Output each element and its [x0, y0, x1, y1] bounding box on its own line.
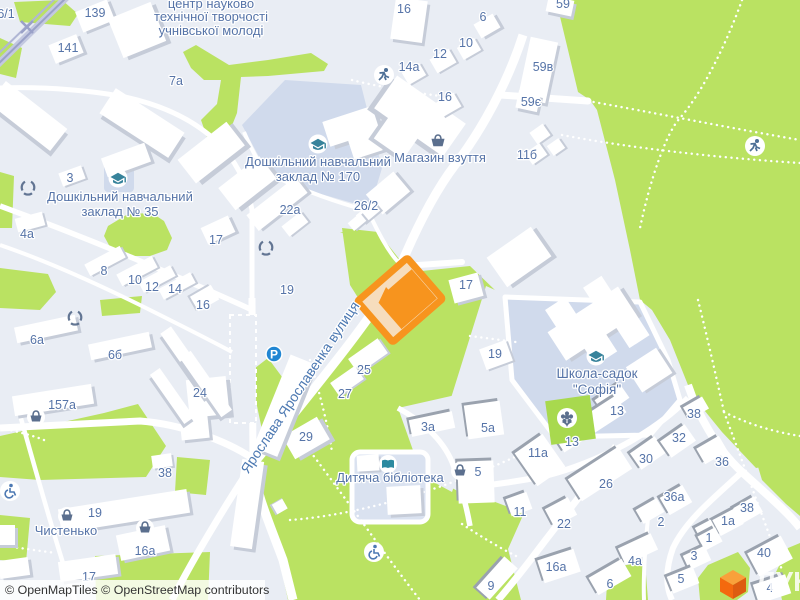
svg-text:30: 30 — [639, 452, 653, 466]
svg-text:157a: 157a — [48, 398, 76, 412]
svg-text:Чистенько: Чистенько — [35, 523, 97, 538]
svg-text:19: 19 — [280, 283, 294, 297]
svg-text:141: 141 — [58, 41, 79, 55]
svg-text:36: 36 — [715, 455, 729, 469]
svg-text:Дитяча бібліотека: Дитяча бібліотека — [336, 470, 444, 485]
svg-text:6a: 6a — [30, 333, 44, 347]
svg-text:38: 38 — [687, 407, 701, 421]
svg-text:16a: 16a — [546, 560, 567, 574]
svg-text:© OpenMapTiles © OpenStreetMap: © OpenMapTiles © OpenStreetMap contribut… — [5, 583, 269, 597]
svg-text:12: 12 — [433, 47, 447, 61]
svg-text:P: P — [270, 348, 278, 362]
svg-text:3a: 3a — [421, 420, 435, 434]
svg-text:11: 11 — [514, 505, 527, 519]
svg-text:3: 3 — [691, 549, 698, 563]
svg-text:1a: 1a — [721, 514, 735, 528]
svg-text:2: 2 — [658, 515, 665, 529]
svg-text:19: 19 — [488, 347, 502, 361]
svg-text:3: 3 — [67, 171, 74, 185]
svg-text:Дошкільний навчальний: Дошкільний навчальний — [47, 189, 193, 204]
svg-text:25: 25 — [357, 363, 371, 377]
svg-text:32: 32 — [672, 431, 686, 445]
svg-text:ЛУН: ЛУН — [756, 566, 800, 597]
svg-text:13: 13 — [565, 435, 579, 449]
svg-text:19: 19 — [88, 506, 102, 520]
svg-text:заклад № 170: заклад № 170 — [276, 169, 360, 184]
svg-text:26: 26 — [599, 477, 613, 491]
svg-text:17: 17 — [209, 233, 223, 247]
svg-text:11a: 11a — [528, 446, 548, 460]
svg-text:14: 14 — [168, 282, 182, 296]
svg-text:технічної творчості: технічної творчості — [154, 9, 268, 24]
svg-text:Дошкільний навчальний: Дошкільний навчальний — [245, 154, 391, 169]
svg-text:40: 40 — [757, 546, 771, 560]
svg-text:16: 16 — [196, 298, 210, 312]
svg-text:заклад № 35: заклад № 35 — [81, 204, 158, 219]
svg-text:22: 22 — [557, 517, 571, 531]
svg-text:6: 6 — [607, 577, 614, 591]
svg-text:59є: 59є — [521, 95, 542, 109]
svg-text:26/2: 26/2 — [354, 199, 378, 213]
svg-text:14a: 14a — [399, 60, 420, 74]
svg-text:5: 5 — [678, 572, 685, 586]
svg-text:1: 1 — [706, 531, 713, 545]
svg-text:38: 38 — [158, 466, 172, 480]
svg-text:36a: 36a — [664, 490, 685, 504]
svg-text:10: 10 — [128, 273, 142, 287]
svg-text:59: 59 — [556, 0, 570, 11]
svg-text:8: 8 — [101, 264, 108, 278]
svg-text:29: 29 — [299, 430, 313, 444]
svg-text:11б: 11б — [517, 148, 537, 162]
svg-text:10: 10 — [459, 36, 473, 50]
svg-text:9: 9 — [488, 579, 495, 593]
svg-text:59в: 59в — [533, 60, 554, 74]
svg-text:16: 16 — [397, 2, 411, 16]
svg-text:6: 6 — [480, 10, 487, 24]
svg-text:12: 12 — [145, 280, 159, 294]
svg-text:16: 16 — [438, 90, 452, 104]
svg-text:6б: 6б — [108, 348, 122, 362]
svg-text:4a: 4a — [20, 227, 34, 241]
svg-text:139: 139 — [85, 6, 106, 20]
svg-text:5: 5 — [475, 465, 482, 479]
svg-text:13: 13 — [610, 404, 624, 418]
svg-text:27: 27 — [338, 387, 352, 401]
svg-text:16a: 16a — [135, 544, 156, 558]
svg-text:"Софія": "Софія" — [573, 382, 621, 397]
svg-text:6/1: 6/1 — [0, 7, 15, 21]
svg-text:7a: 7a — [169, 74, 183, 88]
svg-text:24: 24 — [193, 386, 207, 400]
svg-text:17: 17 — [459, 278, 473, 292]
svg-text:4a: 4a — [628, 554, 642, 568]
svg-text:Магазин взуття: Магазин взуття — [394, 150, 486, 165]
svg-text:учнівської молоді: учнівської молоді — [159, 23, 264, 38]
svg-text:38: 38 — [740, 501, 754, 515]
svg-text:22a: 22a — [280, 203, 301, 217]
svg-text:Школа-садок: Школа-садок — [556, 366, 637, 381]
svg-text:5a: 5a — [481, 421, 495, 435]
